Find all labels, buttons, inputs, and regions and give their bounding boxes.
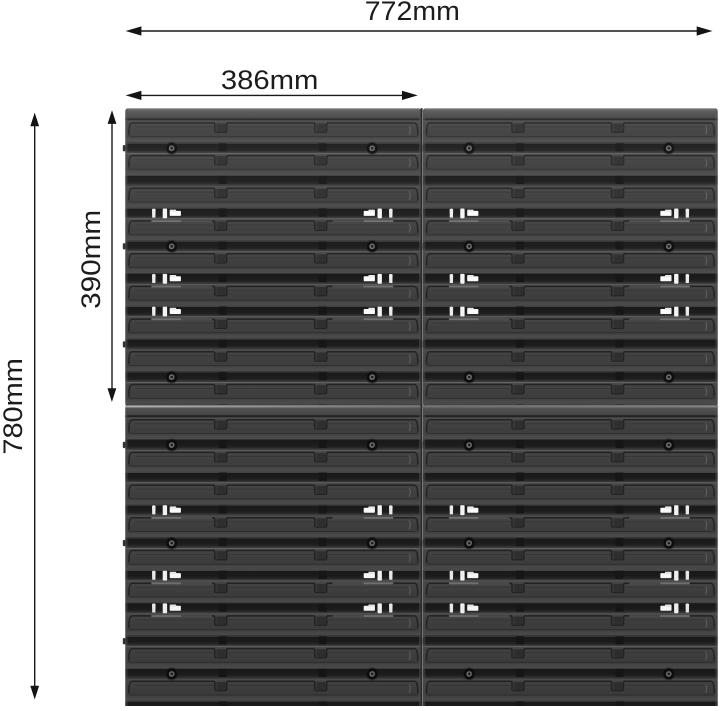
svg-text:386mm: 386mm bbox=[221, 65, 319, 95]
svg-text:772mm: 772mm bbox=[365, 0, 460, 26]
svg-text:390mm: 390mm bbox=[76, 210, 106, 309]
svg-text:780mm: 780mm bbox=[0, 358, 28, 455]
